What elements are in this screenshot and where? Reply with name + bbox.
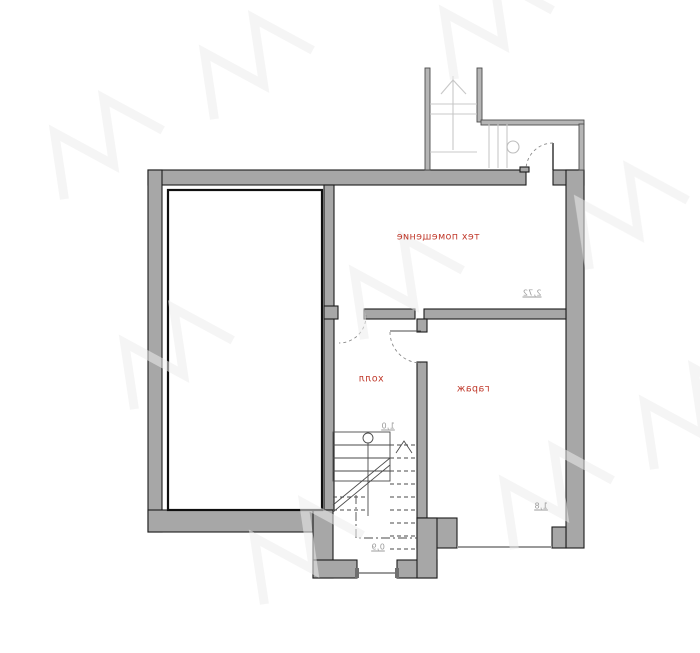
left-room-outline: [168, 190, 322, 510]
bay-threshold-tick: [395, 568, 399, 578]
stair-newel-symbol: [363, 433, 373, 443]
stair-direction-arrow-icon: [396, 441, 412, 453]
wall-tech-divider-b: [424, 309, 566, 319]
wall-hall-garage-upper: [417, 319, 427, 332]
porch-column-symbol: [507, 141, 519, 153]
porch-wall-mid: [477, 68, 482, 122]
porch-walls: [425, 68, 584, 170]
door-jamb-cap: [520, 167, 529, 172]
dimension-label-garage-gate: 1,8: [534, 502, 548, 511]
wall-top-left: [148, 170, 526, 185]
dimension-label-stairs: 0,9: [371, 543, 385, 552]
wall-left: [148, 170, 162, 532]
entrance-door-swing-arc: [526, 143, 553, 170]
porch-wall-top-right: [481, 120, 584, 125]
room-label-hall: холл: [358, 374, 383, 385]
wall-hall-garage-lower: [417, 362, 427, 518]
dimension-label-hall-door: 1,0: [381, 422, 395, 431]
watermark-layer: [30, 0, 700, 604]
wall-bay-right: [417, 518, 437, 578]
floor-plan-canvas: тех помещение холл гараж 2,72 1,0 1,8 0,…: [0, 0, 700, 653]
stair-break-line: [333, 465, 390, 512]
wall-interior-vertical: [324, 185, 334, 510]
wall-garage-pier-right: [552, 527, 566, 548]
wall-bottom-left: [148, 510, 325, 532]
room-label-tech: тех помещение: [396, 232, 479, 243]
porch-wall-left: [425, 68, 430, 170]
wall-bay-bottom-left: [313, 560, 357, 578]
openings-layer: [355, 547, 552, 578]
floor-plan-svg: [0, 0, 700, 653]
stair-break-line: [333, 458, 390, 505]
stair-landing-dashdot: [356, 495, 417, 538]
garage-door-swing-arc: [390, 332, 421, 363]
stair-upper-flight-frame: [333, 432, 390, 481]
bay-threshold-tick: [355, 568, 359, 578]
room-label-garage: гараж: [456, 384, 489, 395]
porch-wall-right: [579, 124, 584, 170]
dimension-label-tech: 2,72: [522, 289, 541, 298]
main-stairs: [333, 432, 417, 549]
wall-interior-cap: [324, 306, 338, 319]
stair-dashed-treads: [333, 445, 417, 549]
wall-tech-divider-a: [364, 309, 415, 319]
